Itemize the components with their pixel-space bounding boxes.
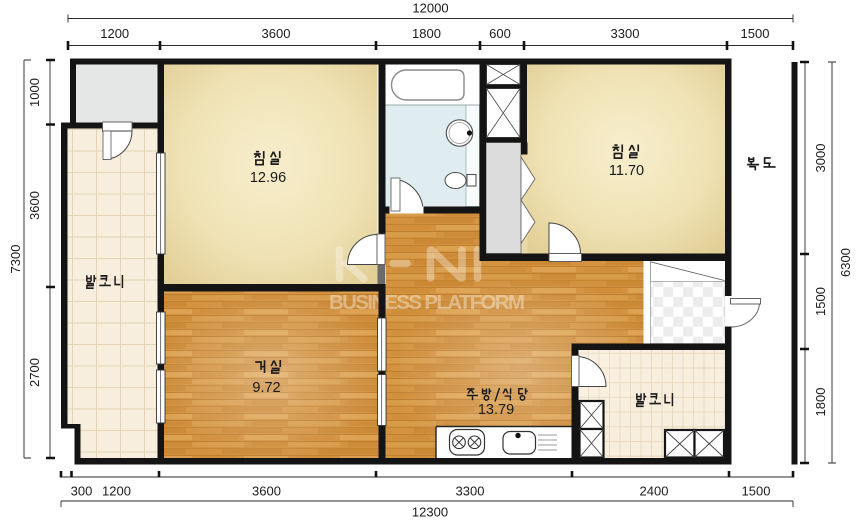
svg-text:BUSINESS PLATFORM: BUSINESS PLATFORM: [329, 291, 525, 314]
svg-text:3600: 3600: [252, 484, 281, 499]
svg-text:2700: 2700: [27, 358, 42, 387]
svg-text:1200: 1200: [100, 26, 129, 41]
svg-text:12000: 12000: [412, 1, 448, 16]
svg-text:2400: 2400: [640, 484, 669, 499]
svg-text:1800: 1800: [412, 26, 441, 41]
svg-text:1000: 1000: [27, 78, 42, 107]
svg-text:11.70: 11.70: [609, 163, 644, 179]
svg-text:1500: 1500: [813, 287, 828, 316]
svg-text:1500: 1500: [741, 26, 770, 41]
svg-text:12300: 12300: [412, 505, 448, 520]
svg-text:7300: 7300: [8, 245, 23, 274]
svg-text:13.79: 13.79: [478, 402, 514, 418]
svg-text:6300: 6300: [838, 248, 853, 277]
svg-text:1800: 1800: [813, 388, 828, 417]
svg-text:9.72: 9.72: [252, 380, 280, 396]
svg-text:1500: 1500: [742, 484, 771, 499]
svg-text:3600: 3600: [27, 191, 42, 220]
svg-text:1200: 1200: [102, 484, 131, 499]
svg-text:300: 300: [71, 484, 93, 499]
svg-text:3600: 3600: [262, 26, 291, 41]
svg-text:12.96: 12.96: [250, 170, 286, 186]
svg-text:3300: 3300: [611, 26, 640, 41]
svg-text:3300: 3300: [456, 484, 485, 499]
svg-text:3000: 3000: [813, 144, 828, 173]
svg-text:600: 600: [489, 26, 511, 41]
